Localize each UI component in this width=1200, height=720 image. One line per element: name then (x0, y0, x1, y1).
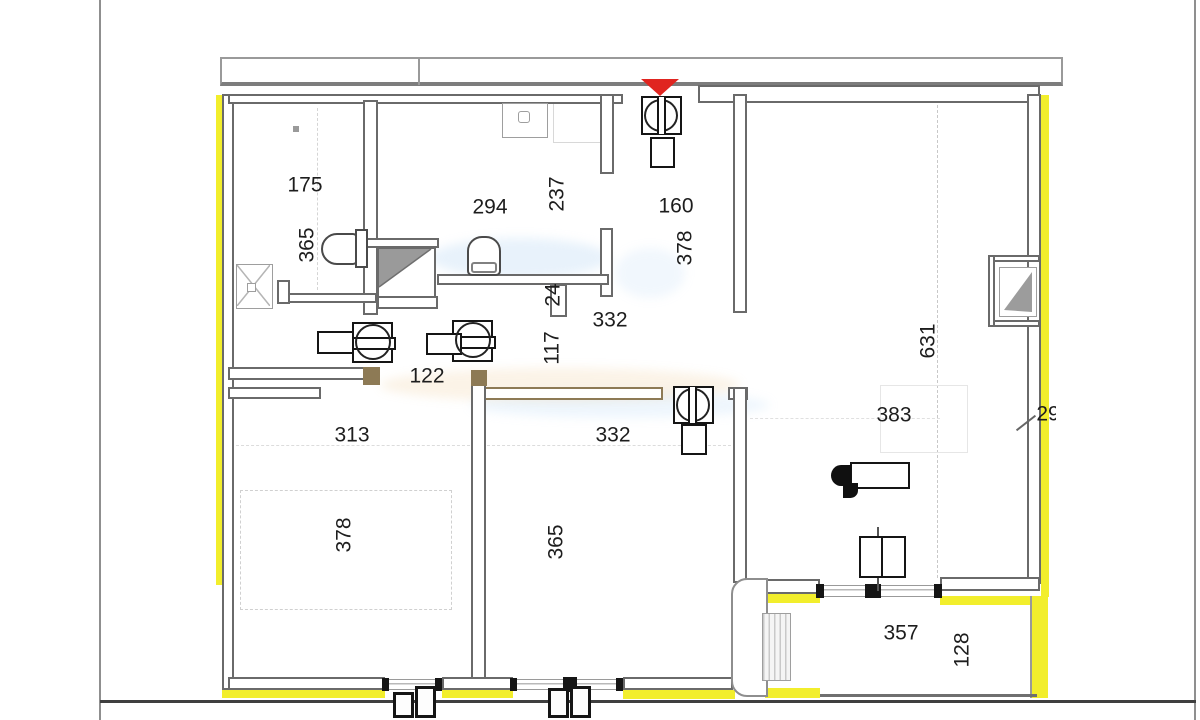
floor-appliance-icon (881, 536, 906, 578)
dimension-label-631: 631 (918, 323, 939, 358)
window-cap (616, 678, 623, 691)
wall-niche-top (988, 255, 1040, 262)
wall-bath-divider (363, 100, 378, 315)
roller-shutter-box-icon (415, 686, 436, 718)
ground-line (100, 700, 1196, 703)
floor-appliance-icon (859, 536, 883, 578)
shower-cabin-icon (377, 247, 436, 298)
dimension-label-313: 313 (334, 425, 369, 446)
highlight-balcony-top-left (763, 594, 820, 603)
balcony-edge-line (820, 694, 1037, 697)
sink-tap (518, 111, 530, 123)
dimension-label-160: 160 (658, 196, 693, 217)
wall-hall-left-lower (600, 228, 613, 297)
window-niche-icon (999, 267, 1037, 317)
dimension-label-237: 237 (547, 176, 568, 211)
dimension-label-294: 294 (472, 197, 507, 218)
wall-bed-divider (471, 370, 486, 683)
dimension-label-128: 128 (952, 632, 973, 667)
wall-top-right (698, 85, 1040, 103)
dimension-label-122: 122 (409, 366, 444, 387)
washer-side-box (317, 331, 354, 354)
wall-hall-left-upper (600, 94, 614, 174)
washer-drum (455, 322, 491, 358)
wall-outer-right (1027, 94, 1041, 584)
highlight-right-wall (1041, 95, 1049, 597)
roller-shutter-box-icon (570, 686, 591, 718)
floor-plan: 175 365 294 237 160 378 332 24 117 122 6… (0, 0, 1200, 720)
wall-top-left (228, 94, 623, 104)
dimension-label-29-clip: 29 (1036, 403, 1056, 425)
tv-board (850, 462, 910, 489)
window-cap (816, 584, 824, 598)
door-jamb-right (471, 370, 487, 386)
window-cap (382, 678, 389, 691)
wall-niche-left (988, 255, 995, 327)
shower-slope (379, 249, 434, 296)
toilet-seat-line (471, 262, 497, 273)
window-cap (510, 678, 517, 691)
page-border-left (99, 0, 101, 720)
toilet-cistern (355, 229, 368, 268)
roller-shutter-box-icon (548, 688, 569, 718)
dimension-label-117: 117 (542, 331, 563, 364)
wall-living-bottom-right (940, 577, 1040, 591)
dimension-label-332-bedroom: 332 (595, 425, 630, 446)
shower-drain (247, 283, 256, 292)
radiator-icon (762, 613, 791, 681)
wall-bottom-1 (228, 677, 385, 690)
balcony-inner-line (1030, 596, 1032, 698)
entry-appliance-bar (657, 97, 666, 134)
highlight-balcony-right (1032, 596, 1048, 698)
entrance-arrow-icon (641, 79, 679, 96)
page-border-right (1194, 0, 1196, 720)
window-cap (435, 678, 442, 691)
dimension-label-175: 175 (287, 175, 322, 196)
dimension-label-29: 29 (1036, 404, 1056, 425)
tv-unit-icon (843, 483, 858, 498)
wall-living-bottom-left (765, 579, 820, 594)
wall-bottom-3 (623, 677, 733, 690)
entry-small-box (650, 137, 675, 168)
scan-tint (430, 238, 610, 278)
slab-divider (418, 58, 420, 85)
wall-hall-right (733, 94, 747, 313)
wall-bath-bottom (437, 274, 609, 285)
highlight-balcony-bottom (765, 688, 820, 698)
wall-niche-bottom (988, 320, 1040, 327)
dimension-label-365: 365 (297, 227, 318, 262)
door-jamb-left (363, 367, 380, 385)
roller-shutter-box-icon (393, 692, 414, 718)
window-cap (934, 584, 942, 598)
highlight-bottom-1 (222, 690, 385, 698)
dimension-label-378-bedroom: 378 (334, 517, 355, 552)
highlight-balcony-top-right (940, 596, 1037, 605)
wall-bedmid-right (733, 387, 747, 583)
dimension-label-332-corridor: 332 (592, 310, 627, 331)
extension-line (317, 108, 318, 290)
wall-bed-left-top (228, 387, 321, 399)
dimension-label-383: 383 (876, 405, 911, 426)
hall-washer-box (681, 424, 707, 455)
dimension-label-357: 357 (883, 623, 918, 644)
wall-bottom-2 (442, 677, 513, 690)
wall-partition-stub (277, 280, 290, 304)
cabinet-outline (553, 103, 601, 143)
dimension-label-378-hall: 378 (675, 230, 696, 265)
niche-triangle (1000, 268, 1034, 314)
highlight-bottom-2 (442, 690, 513, 698)
hall-washer-bar (688, 387, 697, 423)
wall-dot (293, 126, 299, 132)
toilet-icon (321, 233, 358, 265)
wall-room175-partition (285, 293, 377, 303)
wall-room175-bottom (228, 367, 380, 380)
dimension-label-24: 24 (543, 283, 564, 306)
wall-bed-mid-top (482, 387, 663, 400)
highlight-bottom-3 (623, 690, 735, 699)
dimension-label-365-bedroom: 365 (546, 524, 567, 559)
washer-drum (355, 324, 391, 360)
